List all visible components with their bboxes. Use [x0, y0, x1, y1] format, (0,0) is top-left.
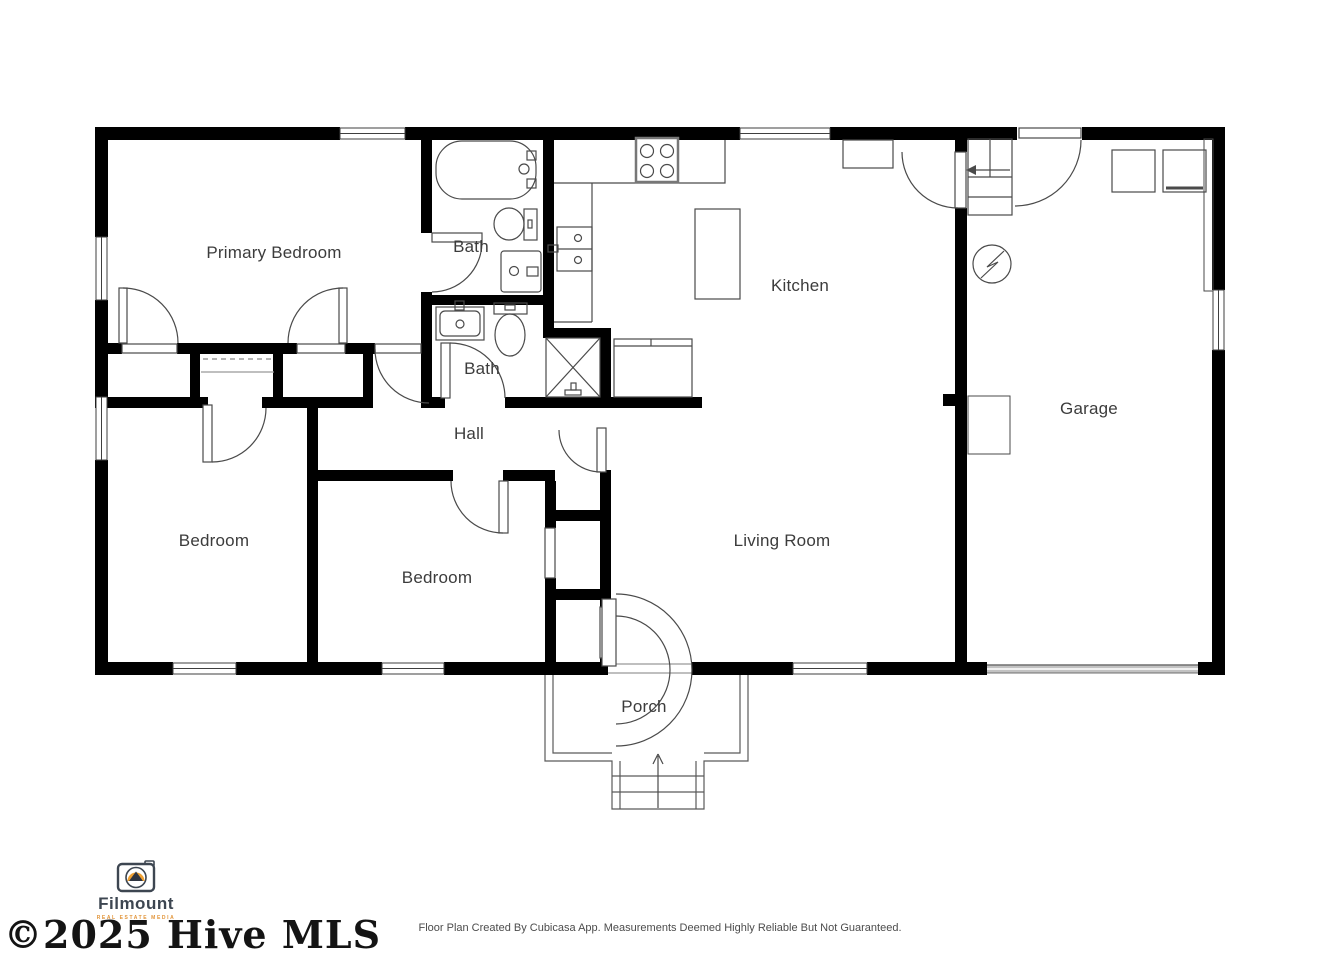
- bedroom-middle-closet-door: [545, 528, 555, 578]
- room-label-hall: Hall: [454, 424, 484, 444]
- room-label-living-room: Living Room: [734, 531, 831, 551]
- room-label-bath-upper: Bath: [453, 237, 489, 257]
- room-label-kitchen: Kitchen: [771, 276, 829, 296]
- room-label-bath-lower: Bath: [464, 359, 500, 379]
- porch-outline: [545, 675, 748, 809]
- garage-door: [987, 664, 1198, 674]
- window-garage-right: [1213, 290, 1224, 350]
- camera-icon: [115, 860, 157, 893]
- kitchen-lower-cabinets: [614, 339, 692, 397]
- room-label-bedroom-left: Bedroom: [179, 531, 249, 551]
- toilet-upper-icon: [494, 208, 537, 240]
- kitchen-island: [695, 209, 740, 299]
- footer-disclaimer: Floor Plan Created By Cubicasa App. Meas…: [0, 922, 1320, 934]
- vanity-upper-icon: [501, 251, 541, 292]
- window-primary-bedroom-top: [340, 128, 405, 139]
- shower-icon: [546, 338, 600, 397]
- kitchen-garage-door: [902, 152, 966, 208]
- primary-bedroom-entry-door: [375, 349, 429, 403]
- floor-plan-page: Primary Bedroom Bath Bath Kitchen Hall B…: [0, 0, 1320, 980]
- window-kitchen-top: [740, 128, 830, 139]
- floor-plan-drawing: [0, 0, 1320, 980]
- garage-stairs-icon: [966, 139, 1012, 215]
- primary-closet-right-door: [288, 288, 347, 343]
- window-bedroom-middle-bottom: [382, 663, 444, 674]
- stove-icon: [636, 138, 678, 182]
- kitchen-sink-icon: [548, 227, 592, 271]
- room-label-primary-bedroom: Primary Bedroom: [206, 243, 341, 263]
- bedroom-middle-door: [451, 481, 508, 533]
- kitchen-counter: [554, 140, 893, 322]
- window-primary-bedroom-left: [96, 237, 107, 300]
- interior-walls: [95, 140, 967, 663]
- closet-rod: [201, 359, 274, 372]
- window-living-room-bottom: [793, 663, 867, 674]
- hall-end-door: [559, 428, 606, 472]
- doors: [119, 128, 1081, 746]
- porch-steps-arrow-icon: [653, 754, 663, 808]
- room-label-porch: Porch: [621, 697, 666, 717]
- window-bedroom-left-bottom: [173, 663, 236, 674]
- room-label-bedroom-middle: Bedroom: [402, 568, 472, 588]
- bedroom-left-door: [203, 405, 266, 462]
- brand-name: Filmount: [98, 894, 174, 914]
- primary-closet-left-door: [119, 288, 178, 343]
- bathtub-icon: [436, 141, 536, 199]
- toilet-lower-icon: [494, 303, 527, 356]
- window-bedroom-left-side: [96, 397, 107, 460]
- electrical-panel-icon: [973, 245, 1011, 283]
- vanity-lower-icon: [436, 301, 484, 340]
- mls-watermark: ©2025 Hive MLS: [4, 912, 381, 957]
- front-door: [602, 594, 692, 746]
- room-label-garage: Garage: [1060, 399, 1118, 419]
- garage-service-door: [1015, 128, 1081, 206]
